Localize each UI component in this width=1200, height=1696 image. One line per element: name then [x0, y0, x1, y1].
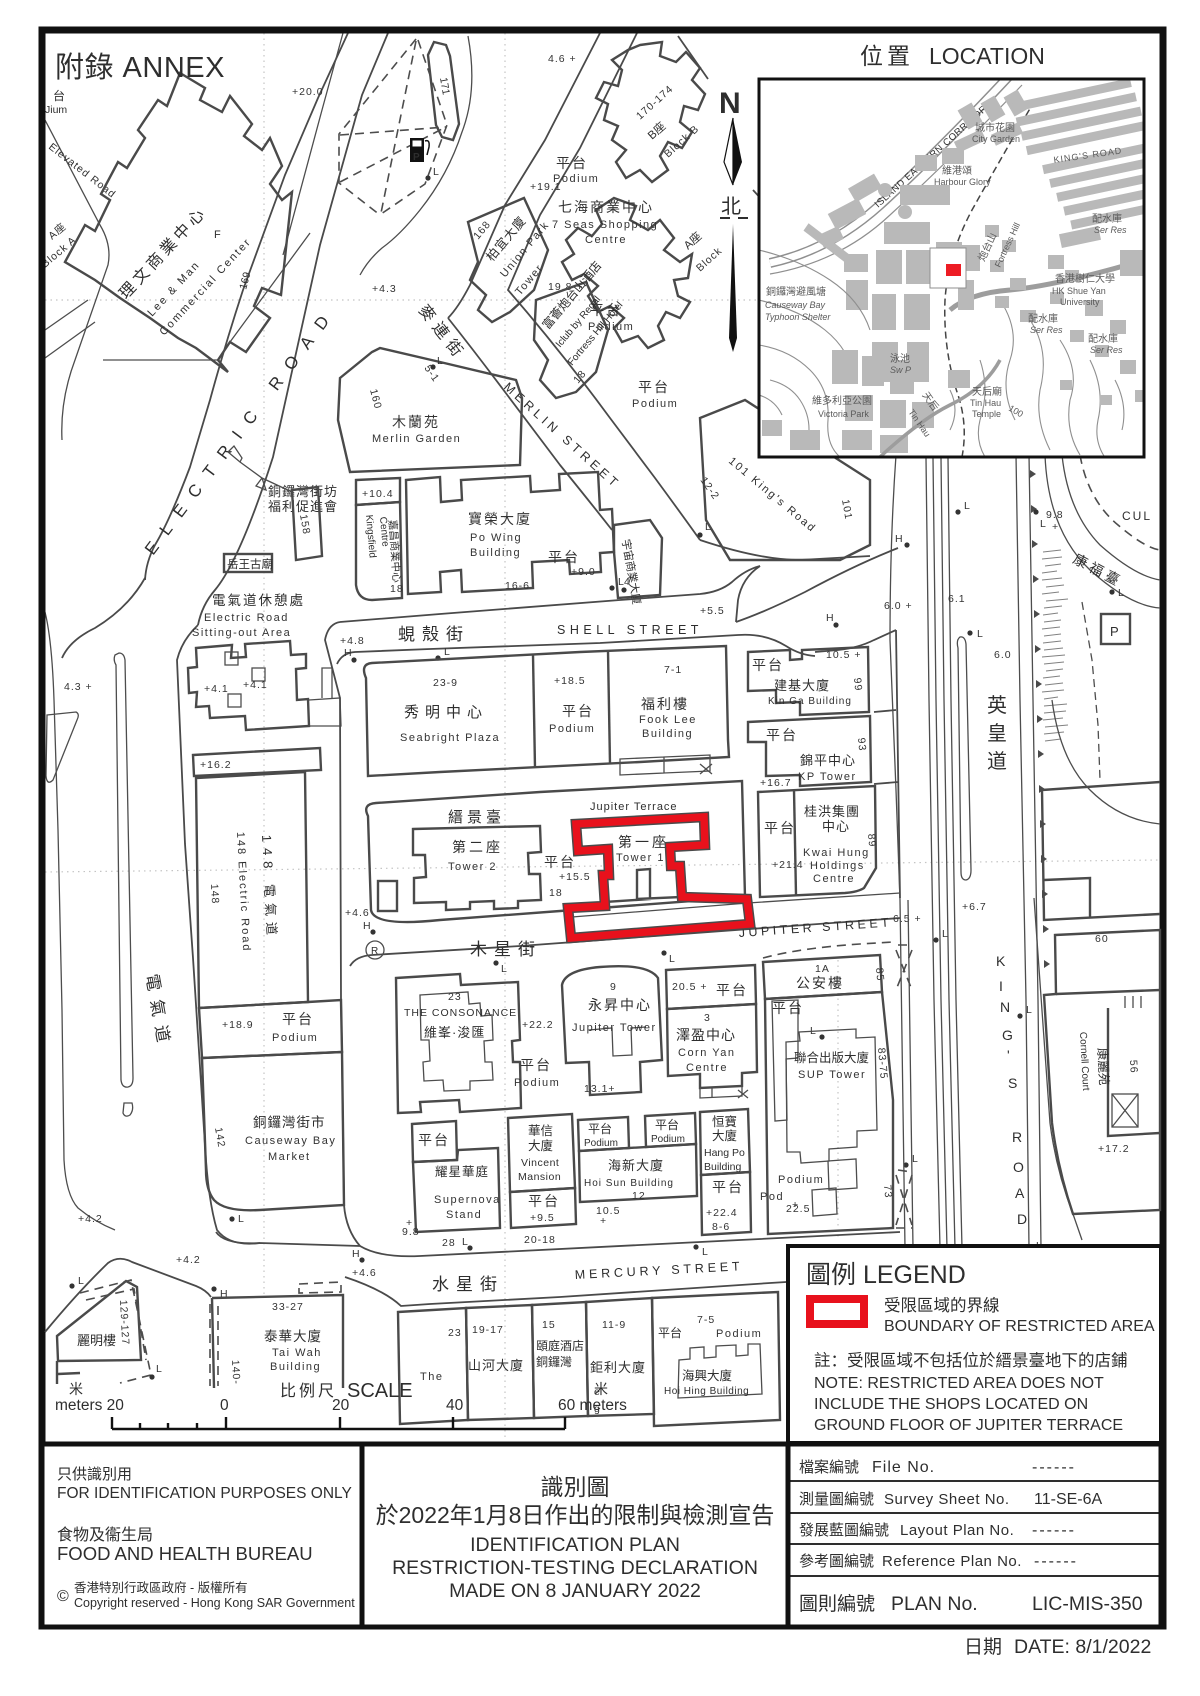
svg-text:Mansion: Mansion [518, 1171, 561, 1183]
svg-text:泳池: 泳池 [890, 352, 910, 365]
svg-text:Podium: Podium [778, 1174, 824, 1186]
svg-text:香港特別行政區政府 - 版權所有: 香港特別行政區政府 - 版權所有 [74, 1580, 248, 1595]
svg-text:頤庭酒店: 頤庭酒店 [536, 1338, 584, 1353]
svg-text:+16.2: +16.2 [200, 759, 232, 771]
svg-text:Seabright Plaza: Seabright Plaza [400, 732, 500, 744]
svg-text:PLAN No.: PLAN No. [891, 1593, 978, 1615]
svg-text:Kin Ga Building: Kin Ga Building [768, 696, 852, 707]
svg-text:129-127: 129-127 [117, 1300, 131, 1346]
svg-text:6.1: 6.1 [948, 593, 966, 605]
svg-text:IDENTIFICATION PLAN: IDENTIFICATION PLAN [470, 1534, 680, 1556]
svg-text:平台: 平台 [712, 1179, 744, 1195]
svg-text:19-17: 19-17 [472, 1324, 504, 1336]
svg-text:平台: 平台 [766, 727, 798, 743]
svg-text:麗明樓: 麗明樓 [77, 1333, 116, 1348]
svg-text:SUP Tower: SUP Tower [798, 1069, 866, 1081]
svg-text:+4.1: +4.1 [243, 679, 268, 691]
svg-text:+9.5: +9.5 [530, 1212, 555, 1224]
svg-text:泰華大廈: 泰華大廈 [264, 1328, 322, 1344]
svg-text:銅鑼灣: 銅鑼灣 [536, 1354, 572, 1369]
svg-text:CUL: CUL [1122, 509, 1152, 523]
svg-text:NOTE: RESTRICTED AREA DOES NOT: NOTE: RESTRICTED AREA DOES NOT [814, 1375, 1104, 1392]
svg-text:20: 20 [332, 1397, 350, 1414]
svg-text:Podium: Podium [272, 1032, 318, 1044]
svg-text:1A: 1A [815, 963, 830, 975]
svg-text:L: L [433, 166, 440, 178]
svg-text:平台: 平台 [752, 657, 784, 673]
svg-text:Tai Wah: Tai Wah [272, 1347, 322, 1359]
svg-text:FOOD AND HEALTH BUREAU: FOOD AND HEALTH BUREAU [57, 1543, 313, 1564]
svg-text:------: ------ [1032, 1522, 1076, 1539]
svg-text:+4.6: +4.6 [352, 1267, 377, 1279]
svg-text:Tin Hau: Tin Hau [970, 398, 1001, 408]
svg-text:20.5 +: 20.5 + [672, 981, 708, 993]
svg-text:23: 23 [448, 991, 462, 1003]
svg-text:Podium: Podium [651, 1134, 685, 1145]
svg-text:9: 9 [610, 981, 617, 993]
svg-text:+4.2: +4.2 [78, 1213, 103, 1225]
svg-text:LIC-MIS-350: LIC-MIS-350 [1032, 1593, 1143, 1615]
svg-text:縉景臺: 縉景臺 [448, 809, 505, 826]
svg-text:日期: 日期 [964, 1636, 1002, 1658]
svg-text:L: L [702, 1246, 709, 1258]
svg-text:3: 3 [704, 1012, 711, 1024]
svg-text:+18.5: +18.5 [554, 675, 586, 687]
svg-text:H: H [344, 647, 353, 659]
svg-text:------: ------ [1034, 1553, 1078, 1570]
svg-text:9.8: 9.8 [402, 1226, 420, 1238]
svg-text:Harbour Glory: Harbour Glory [934, 177, 991, 187]
svg-text:受限區域的界線: 受限區域的界線 [884, 1296, 1000, 1315]
svg-text:公安樓: 公安樓 [796, 975, 844, 991]
svg-text:140-: 140- [229, 1360, 242, 1386]
svg-text:米: 米 [594, 1381, 608, 1397]
svg-text:LOCATION: LOCATION [929, 43, 1045, 69]
svg-text:米: 米 [69, 1381, 83, 1397]
svg-text:岳王古廟: 岳王古廟 [227, 557, 273, 571]
svg-text:D: D [1017, 1211, 1027, 1227]
svg-text:銅鑼灣避風塘: 銅鑼灣避風塘 [766, 285, 826, 298]
svg-text:Podium: Podium [716, 1328, 762, 1340]
svg-text:於2022年1月8日作出的限制與檢測宣告: 於2022年1月8日作出的限制與檢測宣告 [376, 1502, 775, 1528]
svg-text:發展藍圖編號: 發展藍圖編號 [799, 1522, 889, 1539]
svg-text:+: + [1052, 521, 1059, 533]
svg-text:北: 北 [721, 195, 741, 218]
svg-text:海新大廈: 海新大廈 [608, 1158, 664, 1173]
svg-text:N: N [719, 87, 741, 120]
svg-text:平台: 平台 [764, 820, 796, 836]
svg-text:HK Shue Yan: HK Shue Yan [1052, 286, 1106, 296]
svg-text:+17.2: +17.2 [1098, 1143, 1130, 1155]
svg-text:耀星華庭: 耀星華庭 [435, 1164, 489, 1179]
svg-text:Reference Plan No.: Reference Plan No. [882, 1553, 1022, 1570]
svg-text:Ser Res: Ser Res [1094, 225, 1127, 235]
svg-text:6.0: 6.0 [994, 649, 1012, 661]
svg-text:秀明中心: 秀明中心 [404, 704, 488, 721]
svg-text:7 Seas Shopping: 7 Seas Shopping [552, 219, 658, 231]
svg-text:L: L [501, 963, 508, 975]
svg-text:4.6 +: 4.6 + [548, 53, 577, 65]
svg-text:L: L [1118, 587, 1125, 599]
svg-text:40: 40 [446, 1397, 464, 1414]
svg-text:93: 93 [855, 737, 868, 752]
svg-text:註：受限區域不包括位於縉景臺地下的店鋪: 註：受限區域不包括位於縉景臺地下的店鋪 [814, 1351, 1128, 1370]
svg-text:R: R [371, 946, 378, 957]
svg-text:Pod: Pod [760, 1191, 784, 1203]
svg-text:山河大廈: 山河大廈 [468, 1358, 524, 1373]
svg-text:Sitting-out Area: Sitting-out Area [192, 627, 291, 639]
svg-text:23: 23 [448, 1327, 462, 1339]
svg-text:道: 道 [987, 750, 1007, 773]
svg-text:Electric Road: Electric Road [204, 612, 289, 624]
svg-text:33-27: 33-27 [272, 1301, 304, 1313]
svg-text:+4.3: +4.3 [372, 283, 397, 295]
svg-text:0: 0 [220, 1397, 229, 1414]
svg-text:7-5: 7-5 [697, 1314, 715, 1326]
svg-text:+5.5: +5.5 [700, 605, 725, 617]
svg-text:18: 18 [549, 887, 563, 899]
svg-text:Typhoon Shelter: Typhoon Shelter [765, 312, 831, 322]
svg-text:Hoi Sun Building: Hoi Sun Building [584, 1178, 674, 1189]
svg-text:MADE ON 8 JANUARY 2022: MADE ON 8 JANUARY 2022 [449, 1580, 701, 1602]
svg-text:16-6: 16-6 [505, 580, 530, 592]
svg-text:聯合出版大廈: 聯合出版大廈 [794, 1050, 869, 1065]
svg-text:+4.1: +4.1 [204, 683, 229, 695]
svg-text:Building: Building [642, 728, 693, 740]
svg-text:木蘭苑: 木蘭苑 [392, 414, 440, 430]
svg-text:Building: Building [704, 1161, 742, 1173]
svg-text:K: K [996, 953, 1006, 969]
svg-text:Hoi Hing Building: Hoi Hing Building [664, 1386, 749, 1397]
svg-text:89: 89 [865, 833, 878, 848]
svg-text:F: F [214, 229, 221, 241]
svg-text:恒寶: 恒寶 [712, 1114, 737, 1129]
svg-text:L: L [78, 1275, 85, 1287]
svg-text:大廈: 大廈 [712, 1128, 737, 1143]
svg-text:+15.5: +15.5 [559, 871, 591, 883]
svg-text:第一座: 第一座 [618, 834, 669, 850]
svg-text:福利促進會: 福利促進會 [268, 499, 338, 514]
svg-text:Copyright reserved - Hong Kong: Copyright reserved - Hong Kong SAR Gover… [74, 1596, 355, 1610]
svg-text:28: 28 [442, 1237, 456, 1249]
svg-text:SCALE: SCALE [347, 1380, 413, 1402]
svg-text:L: L [705, 521, 712, 533]
svg-text:+21.4: +21.4 [772, 859, 804, 871]
svg-text:FOR IDENTIFICATION PURPOSES ON: FOR IDENTIFICATION PURPOSES ONLY [57, 1485, 352, 1502]
svg-text:12: 12 [632, 1190, 646, 1202]
svg-text:L: L [238, 1213, 245, 1225]
svg-text:9.8: 9.8 [1046, 509, 1064, 521]
svg-text:Centre: Centre [813, 873, 855, 885]
svg-text:20-18: 20-18 [524, 1234, 556, 1246]
svg-text:H: H [352, 1248, 361, 1260]
svg-text:英: 英 [987, 694, 1007, 717]
svg-text:中心: 中心 [822, 819, 850, 834]
svg-text:Merlin Garden: Merlin Garden [372, 433, 461, 445]
svg-text:G: G [1002, 1027, 1013, 1043]
svg-text:City Garden: City Garden [972, 134, 1020, 144]
svg-text:Sw P: Sw P [890, 365, 911, 375]
svg-text:Vincent: Vincent [521, 1157, 559, 1169]
svg-text:澤盈中心: 澤盈中心 [676, 1027, 736, 1043]
svg-text:©: © [57, 1588, 69, 1605]
svg-text:電氣道休憩處: 電氣道休憩處 [212, 592, 305, 608]
svg-text:L: L [964, 500, 971, 512]
svg-text:INCLUDE THE SHOPS LOCATED ON: INCLUDE THE SHOPS LOCATED ON [814, 1396, 1088, 1413]
svg-text:配水庫: 配水庫 [1092, 212, 1122, 225]
svg-text:KP Tower: KP Tower [798, 771, 857, 783]
svg-text:Podium: Podium [549, 723, 595, 735]
svg-text:Causeway Bay: Causeway Bay [765, 300, 826, 310]
svg-text:11-SE-6A: 11-SE-6A [1034, 1491, 1103, 1508]
svg-text:23-9: 23-9 [433, 677, 458, 689]
svg-text:L: L [437, 355, 444, 367]
svg-text:+20.0: +20.0 [292, 86, 324, 98]
svg-text:Po Wing: Po Wing [470, 532, 522, 544]
svg-text:永昇中心: 永昇中心 [588, 997, 652, 1013]
svg-text:56: 56 [1127, 1060, 1140, 1074]
svg-text:平台: 平台 [658, 1325, 682, 1340]
svg-text:Market: Market [268, 1151, 311, 1163]
svg-text:Tower 2: Tower 2 [448, 861, 497, 873]
svg-text:+6.7: +6.7 [962, 901, 987, 913]
svg-text:Victoria Park: Victoria Park [818, 409, 869, 419]
svg-text:維峯·浚匯: 維峯·浚匯 [424, 1025, 485, 1040]
svg-text:香港樹仁大學: 香港樹仁大學 [1055, 272, 1115, 285]
svg-text:平台: 平台 [638, 379, 670, 395]
svg-text:識別圖: 識別圖 [541, 1474, 610, 1500]
svg-text:6.0 +: 6.0 + [884, 600, 913, 612]
svg-text:Building: Building [270, 1361, 321, 1373]
svg-text:木星街: 木星街 [470, 940, 542, 959]
svg-text:配水庫: 配水庫 [1088, 332, 1118, 345]
svg-text:第二座: 第二座 [452, 839, 503, 855]
svg-text:L: L [912, 1153, 919, 1165]
svg-text:康麗苑: 康麗苑 [1095, 1047, 1112, 1086]
svg-text:附錄 ANNEX: 附錄 ANNEX [55, 51, 225, 84]
svg-text:錦平中心: 錦平中心 [800, 753, 856, 768]
svg-text:食物及衞生局: 食物及衞生局 [57, 1526, 153, 1544]
svg-text:Ser Res: Ser Res [1090, 345, 1123, 355]
svg-text:比例尺: 比例尺 [280, 1382, 337, 1400]
svg-text:七海商業中心: 七海商業中心 [558, 199, 654, 215]
svg-text:GROUND FLOOR OF JUPITER TERRAC: GROUND FLOOR OF JUPITER TERRACE [814, 1417, 1123, 1434]
svg-text:平台: 平台 [520, 1057, 552, 1073]
svg-text:桂洪集團: 桂洪集團 [804, 804, 860, 819]
svg-text:蜆殼街: 蜆殼街 [398, 625, 470, 644]
svg-text:+4.6: +4.6 [345, 907, 370, 919]
svg-text:水星街: 水星街 [432, 1275, 504, 1294]
svg-text:University: University [1060, 297, 1100, 307]
svg-text:11-9: 11-9 [602, 1319, 626, 1331]
svg-text:15: 15 [542, 1319, 556, 1331]
svg-text:華信: 華信 [528, 1124, 553, 1138]
svg-text:+18.9: +18.9 [222, 1019, 254, 1031]
svg-text:7-1: 7-1 [664, 664, 682, 676]
svg-text:平台: 平台 [562, 703, 594, 719]
svg-text:平台: 平台 [544, 854, 576, 870]
svg-text:Holdings: Holdings [810, 860, 865, 872]
svg-text:6.5 +: 6.5 + [893, 913, 922, 925]
svg-text:+22.4: +22.4 [706, 1207, 738, 1219]
svg-text:L: L [618, 576, 625, 588]
svg-text:Fook Lee: Fook Lee [639, 714, 697, 726]
svg-text:L: L [1026, 1004, 1033, 1016]
svg-text:L: L [977, 628, 984, 640]
svg-text:只供識別用: 只供識別用 [57, 1466, 132, 1483]
svg-text:': ' [1007, 1047, 1010, 1063]
svg-text:參考圖編號: 參考圖編號 [799, 1553, 874, 1570]
svg-text:BOUNDARY OF RESTRICTED AREA: BOUNDARY OF RESTRICTED AREA [884, 1318, 1155, 1335]
svg-text:RESTRICTION-TESTING DECLARATIO: RESTRICTION-TESTING DECLARATION [392, 1557, 758, 1579]
svg-text:4: 4 [624, 576, 631, 588]
svg-text:DATE: 8/1/2022: DATE: 8/1/2022 [1014, 1636, 1151, 1658]
svg-text:Tower 1: Tower 1 [616, 852, 665, 864]
svg-text:S: S [1008, 1075, 1017, 1091]
svg-text:4.3 +: 4.3 + [64, 681, 93, 693]
svg-text:圖例 LEGEND: 圖例 LEGEND [806, 1261, 966, 1289]
svg-text:平台: 平台 [588, 1121, 612, 1136]
svg-text:+19.1: +19.1 [530, 181, 562, 193]
svg-text:SHELL STREET: SHELL STREET [557, 623, 703, 637]
svg-text:L: L [156, 1363, 163, 1375]
svg-text:+10.4: +10.4 [362, 488, 394, 500]
svg-text:+4.2: +4.2 [176, 1254, 201, 1266]
svg-text:維港頌: 維港頌 [942, 164, 972, 177]
svg-text:圖則編號: 圖則編號 [799, 1593, 875, 1615]
svg-text:60 meters: 60 meters [558, 1397, 627, 1414]
svg-text:73: 73 [881, 1184, 894, 1199]
svg-text:H: H [363, 920, 372, 932]
svg-text:Corn Yan: Corn Yan [678, 1047, 735, 1059]
svg-text:Jupiter Tower: Jupiter Tower [572, 1022, 657, 1034]
svg-text:meters 20: meters 20 [55, 1397, 124, 1414]
svg-text:+9.0: +9.0 [571, 566, 596, 578]
svg-text:A: A [1015, 1185, 1025, 1201]
svg-text:L: L [444, 646, 451, 658]
svg-text:H: H [826, 612, 835, 624]
svg-text:城市花園: 城市花園 [975, 121, 1015, 134]
svg-text:File No.: File No. [872, 1459, 935, 1476]
svg-text:99: 99 [851, 677, 864, 692]
svg-text:P: P [413, 152, 420, 163]
svg-text:O: O [1013, 1159, 1024, 1175]
svg-text:平台: 平台 [716, 982, 748, 998]
svg-text:Supernova: Supernova [434, 1194, 501, 1206]
svg-text:平台: 平台 [655, 1117, 679, 1132]
svg-text:The: The [420, 1371, 443, 1383]
svg-text:Podium: Podium [632, 398, 678, 410]
svg-text:皇: 皇 [987, 722, 1007, 745]
svg-text:I: I [999, 978, 1003, 994]
svg-text:+4.8: +4.8 [340, 635, 365, 647]
svg-text:+: + [600, 1215, 607, 1227]
svg-text:H: H [895, 533, 904, 545]
svg-text:Podium: Podium [584, 1138, 618, 1149]
svg-text:85: 85 [873, 967, 886, 982]
svg-text:L: L [462, 1236, 469, 1248]
svg-text:Centre: Centre [686, 1062, 728, 1074]
svg-text:18: 18 [390, 583, 404, 595]
svg-text:Jupiter Terrace: Jupiter Terrace [590, 801, 678, 813]
svg-text:P: P [1110, 624, 1119, 639]
svg-text:Podium: Podium [514, 1077, 560, 1089]
svg-text:Causeway Bay: Causeway Bay [245, 1135, 336, 1147]
svg-text:Survey Sheet No.: Survey Sheet No. [884, 1491, 1010, 1508]
svg-text:位置: 位置 [860, 43, 914, 69]
svg-text:Building: Building [470, 547, 521, 559]
svg-text:平台: 平台 [528, 1193, 560, 1209]
svg-text:Layout Plan No.: Layout Plan No. [900, 1522, 1014, 1539]
svg-text:8-6: 8-6 [712, 1221, 730, 1233]
svg-text:福利樓: 福利樓 [641, 696, 689, 712]
svg-text:平台: 平台 [556, 155, 588, 171]
svg-text:Jium: Jium [45, 104, 67, 116]
svg-text:平台: 平台 [772, 1000, 804, 1016]
svg-text:L: L [942, 928, 949, 940]
svg-text:鉅利大廈: 鉅利大廈 [590, 1360, 646, 1375]
svg-text:Hang Po: Hang Po [704, 1147, 745, 1159]
svg-text:148: 148 [208, 884, 221, 905]
svg-text:Kwai Hung: Kwai Hung [803, 847, 870, 859]
svg-text:+22.2: +22.2 [522, 1019, 554, 1031]
svg-text:天后廟: 天后廟 [972, 385, 1002, 398]
svg-text:22.5: 22.5 [786, 1203, 810, 1215]
svg-text:銅鑼灣街市: 銅鑼灣街市 [253, 1114, 326, 1130]
svg-text:測量圖編號: 測量圖編號 [799, 1491, 874, 1508]
svg-text:大廈: 大廈 [528, 1138, 553, 1153]
svg-text:平台: 平台 [418, 1132, 450, 1148]
svg-text:N: N [1000, 999, 1010, 1015]
svg-text:平台: 平台 [548, 549, 580, 565]
svg-text:Stand: Stand [446, 1209, 482, 1221]
svg-text:寶榮大廈: 寶榮大廈 [468, 511, 532, 527]
svg-text:Ser Res: Ser Res [1030, 325, 1063, 335]
svg-text:平台: 平台 [282, 1011, 314, 1027]
svg-text:+16.7: +16.7 [760, 777, 792, 789]
svg-text:Centre: Centre [585, 234, 627, 246]
svg-text:台: 台 [53, 88, 65, 103]
svg-text:海興大廈: 海興大廈 [682, 1368, 732, 1383]
svg-text:配水庫: 配水庫 [1028, 312, 1058, 325]
svg-text:L: L [1040, 518, 1047, 530]
svg-text:Temple: Temple [972, 409, 1001, 419]
svg-text:檔案編號: 檔案編號 [799, 1458, 859, 1476]
svg-text:------: ------ [1032, 1459, 1076, 1476]
svg-text:L: L [669, 953, 676, 965]
svg-text:60: 60 [1095, 933, 1109, 945]
svg-text:R: R [1012, 1129, 1022, 1145]
svg-text:維多利亞公園: 維多利亞公園 [812, 394, 872, 407]
svg-text:THE CONSONANCE: THE CONSONANCE [404, 1007, 517, 1019]
svg-text:建基大廈: 建基大廈 [774, 678, 830, 693]
